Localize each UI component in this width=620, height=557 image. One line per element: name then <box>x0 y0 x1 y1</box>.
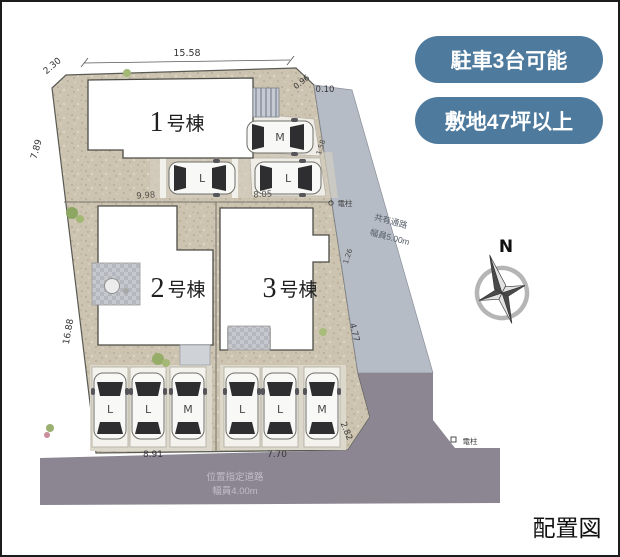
car-bottom-3: M <box>169 373 207 439</box>
badge-parking: 駐車3台可能 <box>415 36 603 83</box>
dim-lot1: 9.98 <box>136 190 156 201</box>
car-bottom-4: L <box>223 373 261 439</box>
front-road-width: 幅員4.00m <box>212 485 257 497</box>
pole-label-2: 電柱 <box>463 436 478 446</box>
svg-text:L: L <box>277 403 284 416</box>
dim-top: 15.58 <box>173 48 200 59</box>
building-3-patio <box>228 326 270 350</box>
building-1-stairs <box>253 88 279 117</box>
dim-park-left: 8.91 <box>143 450 163 460</box>
stall-divider <box>160 158 166 198</box>
badge-parking-label: 駐車3台可能 <box>451 49 568 73</box>
svg-text:L: L <box>199 172 206 185</box>
svg-text:L: L <box>107 403 114 416</box>
car-bottom-1: L <box>91 373 129 439</box>
front-road-name: 位置指定道路 <box>206 471 264 483</box>
building-2-porch <box>180 345 210 365</box>
car-middle-1: L <box>169 159 235 197</box>
car-bottom-2: L <box>129 373 167 439</box>
svg-text:L: L <box>145 403 152 416</box>
car-bottom-6: M <box>303 373 341 439</box>
badge-area: 敷地47坪以上 <box>415 97 603 144</box>
svg-text:M: M <box>183 403 193 416</box>
dim-lot2: 8.05 <box>253 189 273 200</box>
svg-text:M: M <box>275 131 285 144</box>
terrace-table <box>105 279 120 294</box>
figure-caption: 配置図 <box>533 515 602 541</box>
site-plan-svg: 1号棟 2号棟 3号棟 M L <box>0 0 620 557</box>
car-bottom-5: L <box>261 373 299 439</box>
car-upper-m: M <box>247 118 313 156</box>
badge-area-label: 敷地47坪以上 <box>445 110 573 134</box>
dim-corner-tr-b: 0.10 <box>316 85 335 95</box>
dim-park-right: 7.70 <box>267 450 287 460</box>
compass-n-label: N <box>499 237 513 257</box>
svg-text:M: M <box>317 403 327 416</box>
pole-label-1: 電柱 <box>338 198 353 208</box>
site-plan-image: 1号棟 2号棟 3号棟 M L <box>0 0 620 557</box>
terrace-chair <box>123 288 129 294</box>
svg-text:L: L <box>285 172 292 185</box>
svg-text:L: L <box>239 403 246 416</box>
